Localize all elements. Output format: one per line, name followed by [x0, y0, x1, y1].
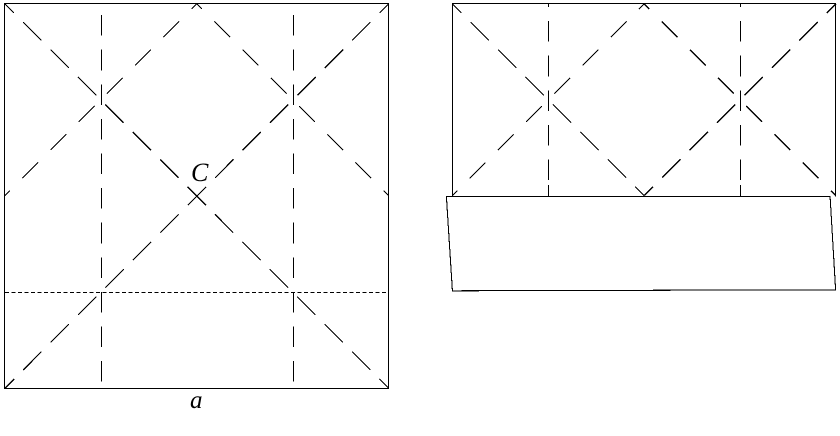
svg-text:a: a	[190, 387, 203, 414]
svg-text:C: C	[191, 158, 209, 187]
